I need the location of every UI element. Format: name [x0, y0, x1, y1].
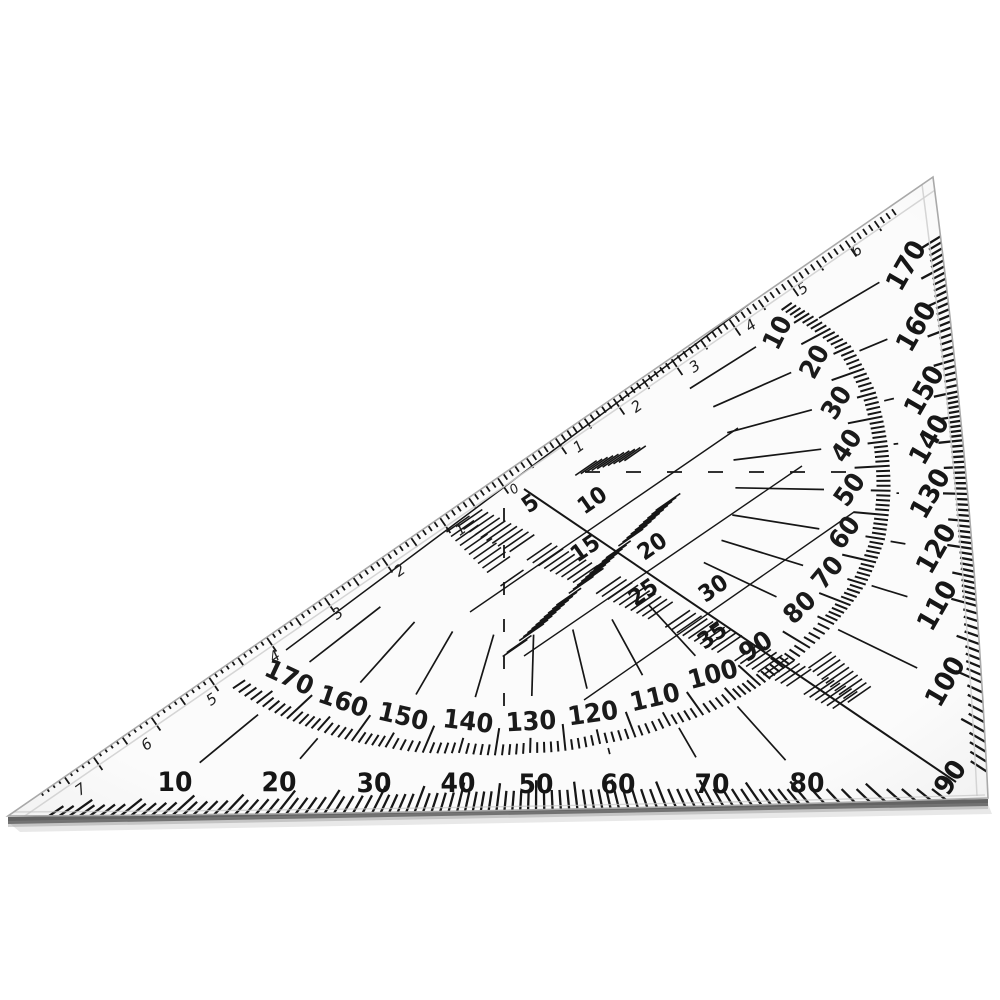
bottom-degree-label-80: 80 — [790, 768, 825, 799]
bottom-degree-label-40: 40 — [441, 768, 476, 799]
arc-label-140: 140 — [441, 703, 495, 739]
bottom-degree-label-30: 30 — [357, 768, 392, 799]
bottom-degree-label-60: 60 — [601, 769, 636, 800]
bottom-degree-label-10: 10 — [158, 767, 193, 798]
bottom-degree-label-70: 70 — [695, 769, 730, 800]
bottom-degree-label-20: 20 — [262, 767, 297, 798]
bottom-degree-label-50: 50 — [519, 769, 554, 800]
arc-label-130: 130 — [505, 705, 557, 738]
set-square-photo: 1020304050607080901001101201301401501601… — [0, 0, 1000, 1000]
photo-canvas: 1020304050607080901001101201301401501601… — [0, 0, 1000, 1000]
